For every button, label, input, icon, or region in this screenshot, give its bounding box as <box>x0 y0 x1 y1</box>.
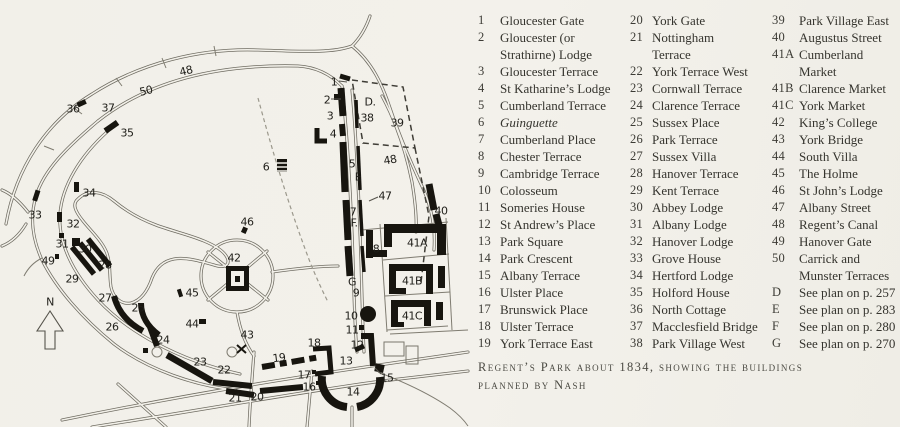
map-label-14: 14 <box>347 386 360 399</box>
map-label-48: 48 <box>382 152 398 167</box>
legend-item-number: 3 <box>478 63 500 80</box>
legend-item-label: Gloucester Terrace <box>500 63 628 80</box>
legend-item-number: 25 <box>630 114 652 131</box>
map-label-27: 27 <box>99 292 112 305</box>
legend-item: 29Kent Terrace <box>630 182 770 199</box>
map-label-19: 19 <box>272 351 287 366</box>
legend-item: 21NottinghamTerrace <box>630 29 770 63</box>
legend-item: 49Hanover Gate <box>772 233 900 250</box>
map-label-16: 16 <box>303 381 316 394</box>
map-label-26: 26 <box>106 321 119 334</box>
legend-item: 23Cornwall Terrace <box>630 80 770 97</box>
legend-item: 26Park Terrace <box>630 131 770 148</box>
legend-column: 1Gloucester Gate2Gloucester (orStrathirn… <box>478 12 628 352</box>
legend-item-number: 2 <box>478 29 500 46</box>
legend-item-number: 17 <box>478 301 500 318</box>
legend-item-label: York Terrace West <box>652 63 770 80</box>
legend-item-label: Cumberland Place <box>500 131 628 148</box>
legend-item: 41CYork Market <box>772 97 900 114</box>
york-bridge-mark <box>237 345 246 353</box>
legend-item-label: Brunswick Place <box>500 301 628 318</box>
legend-item-label: Augustus Street <box>799 29 900 46</box>
legend-item: 37Macclesfield Bridge <box>630 318 770 335</box>
map-label-22: 22 <box>218 364 231 377</box>
legend-item: 47Albany Street <box>772 199 900 216</box>
map-label-11: 11 <box>346 324 359 337</box>
legend-item-label-line2: Munster Terraces <box>799 267 900 284</box>
map-label-40: 40 <box>435 205 448 218</box>
legend-item-label-line2: Strathirne) Lodge <box>500 46 628 63</box>
legend-item: 17Brunswick Place <box>478 301 628 318</box>
legend-item: 8Chester Terrace <box>478 148 628 165</box>
legend-item-number: 28 <box>630 165 652 182</box>
map-label-6: 6 <box>263 161 270 174</box>
legend-item-number: 5 <box>478 97 500 114</box>
legend-item: 50Carrick andMunster Terraces <box>772 250 900 284</box>
legend-item-number: 43 <box>772 131 799 148</box>
legend-item-number: 4 <box>478 80 500 97</box>
legend-item: 40Augustus Street <box>772 29 900 46</box>
map-label-37: 37 <box>102 102 115 115</box>
map-label-36: 36 <box>67 103 80 116</box>
legend-item-number: 49 <box>772 233 799 250</box>
legend-item-label: Regent’s Canal <box>799 216 900 233</box>
legend-item-label: Cambridge Terrace <box>500 165 628 182</box>
legend-item: 36North Cottage <box>630 301 770 318</box>
legend-item: 45The Holme <box>772 165 900 182</box>
legend-item-label: The Holme <box>799 165 900 182</box>
legend-item-number: 37 <box>630 318 652 335</box>
legend-item: 43York Bridge <box>772 131 900 148</box>
map-label-2: 2 <box>324 94 331 107</box>
legend-item: 28Hanover Terrace <box>630 165 770 182</box>
legend-item: FSee plan on p. 280 <box>772 318 900 335</box>
map-label-N: N <box>46 296 54 309</box>
legend-item: 38Park Village West <box>630 335 770 352</box>
legend-item: 42King’s College <box>772 114 900 131</box>
legend-item-label: South Villa <box>799 148 900 165</box>
legend-item-label: Cornwall Terrace <box>652 80 770 97</box>
legend-item-number: 34 <box>630 267 652 284</box>
legend-item-number: 39 <box>772 12 799 29</box>
legend-item-number: 30 <box>630 199 652 216</box>
legend-item-label: See plan on p. 283 <box>799 301 900 318</box>
legend-item: DSee plan on p. 257 <box>772 284 900 301</box>
legend-item-number: 14 <box>478 250 500 267</box>
legend-item-label-line2: Market <box>799 63 900 80</box>
legend-item-number: 23 <box>630 80 652 97</box>
legend-item-number: E <box>772 301 799 318</box>
legend-item: 27Sussex Villa <box>630 148 770 165</box>
legend-item-number: 27 <box>630 148 652 165</box>
legend-item-label-line2: Terrace <box>652 46 770 63</box>
legend-item-label: Park Crescent <box>500 250 628 267</box>
legend-item: 20York Gate <box>630 12 770 29</box>
legend-item-number: 42 <box>772 114 799 131</box>
legend-item: 35Holford House <box>630 284 770 301</box>
legend-item-label: See plan on p. 257 <box>799 284 900 301</box>
legend-item-number: 44 <box>772 148 799 165</box>
legend-item-number: 24 <box>630 97 652 114</box>
legend-column: 39Park Village East40Augustus Street41AC… <box>772 12 900 352</box>
legend-item-label: Guinguette <box>500 114 628 131</box>
colosseum-dome <box>360 306 376 322</box>
map-label-3: 3 <box>327 110 334 123</box>
legend-item-label: NottinghamTerrace <box>652 29 770 63</box>
legend-item-label: Kent Terrace <box>652 182 770 199</box>
legend-item-label: Carrick andMunster Terraces <box>799 250 900 284</box>
map-label-29: 29 <box>66 273 79 286</box>
legend-item-label: Macclesfield Bridge <box>652 318 770 335</box>
legend-item: 14Park Crescent <box>478 250 628 267</box>
clarence-gate-circle <box>152 347 162 357</box>
map-label-44: 44 <box>186 318 199 331</box>
legend-item-number: 1 <box>478 12 500 29</box>
legend-item-label: Park Village West <box>652 335 770 352</box>
legend-item-number: 20 <box>630 12 652 29</box>
legend-item: 18Ulster Terrace <box>478 318 628 335</box>
map-label-41B: 41B <box>402 275 422 288</box>
legend-item-label: Grove House <box>652 250 770 267</box>
legend-item: 5Cumberland Terrace <box>478 97 628 114</box>
map-label-23: 23 <box>194 356 207 369</box>
legend-item-label: Someries House <box>500 199 628 216</box>
legend-item: 22York Terrace West <box>630 63 770 80</box>
legend-item-number: 7 <box>478 131 500 148</box>
legend-item: 16Ulster Place <box>478 284 628 301</box>
legend-item-number: 47 <box>772 199 799 216</box>
legend-item-label: North Cottage <box>652 301 770 318</box>
legend-item-number: 29 <box>630 182 652 199</box>
legend-item-label: St Katharine’s Lodge <box>500 80 628 97</box>
map-label-20: 20 <box>251 391 264 404</box>
legend-item-label: York Terrace East <box>500 335 628 352</box>
map-label-31: 31 <box>56 238 69 251</box>
map-label-15: 15 <box>381 372 394 385</box>
legend-item: 25Sussex Place <box>630 114 770 131</box>
map-label-12: 12 <box>351 339 364 352</box>
legend-item: 32Hanover Lodge <box>630 233 770 250</box>
legend-item-label: Abbey Lodge <box>652 199 770 216</box>
map-label-34: 34 <box>83 187 96 200</box>
map-label-10: 10 <box>345 310 358 323</box>
legend-item: 15Albany Terrace <box>478 267 628 284</box>
legend-item-number: 33 <box>630 250 652 267</box>
legend-item: 13Park Square <box>478 233 628 250</box>
legend-item-label: Cumberland Terrace <box>500 97 628 114</box>
map-label-32: 32 <box>67 218 80 231</box>
legend-item-number: 35 <box>630 284 652 301</box>
legend-item-label: Ulster Terrace <box>500 318 628 335</box>
map-label-18: 18 <box>308 337 321 350</box>
map-label-D: D. <box>365 96 376 109</box>
legend-item-number: 26 <box>630 131 652 148</box>
legend-item-label: Holford House <box>652 284 770 301</box>
map-label-G: G <box>348 276 356 289</box>
legend-item-number: 16 <box>478 284 500 301</box>
legend-item-label: Hanover Lodge <box>652 233 770 250</box>
legend-item: 19York Terrace East <box>478 335 628 352</box>
map-label-50: 50 <box>138 83 154 99</box>
legend-item: 31Albany Lodge <box>630 216 770 233</box>
map-label-45: 45 <box>186 287 199 300</box>
caption-line-2: planned by Nash <box>478 376 888 394</box>
map-label-30: 30 <box>79 243 92 256</box>
map-label-33: 33 <box>29 209 42 222</box>
legend-item-number: 38 <box>630 335 652 352</box>
map-label-7: 7 <box>350 206 357 219</box>
map-label-13: 13 <box>340 355 353 368</box>
legend-item-number: 31 <box>630 216 652 233</box>
legend-item-label: Park Square <box>500 233 628 250</box>
legend-item-label: Albany Lodge <box>652 216 770 233</box>
regents-park-map: 4850363735343332313049282927252624454446… <box>0 0 470 427</box>
legend-item-label: York Bridge <box>799 131 900 148</box>
legend-item: 7Cumberland Place <box>478 131 628 148</box>
book-page: { "caption": { "line1": "Regent’s Park a… <box>0 0 900 427</box>
legend-item-label: Albany Street <box>799 199 900 216</box>
legend-item-number: 15 <box>478 267 500 284</box>
legend-item-label: Sussex Place <box>652 114 770 131</box>
legend-item-number: 22 <box>630 63 652 80</box>
legend-item-number: 19 <box>478 335 500 352</box>
legend-item-number: 6 <box>478 114 500 131</box>
legend-item-label: Gloucester (orStrathirne) Lodge <box>500 29 628 63</box>
legend-item: 48Regent’s Canal <box>772 216 900 233</box>
legend-item: 10Colosseum <box>478 182 628 199</box>
legend-item-number: 41B <box>772 80 799 97</box>
legend-item-label: Hanover Terrace <box>652 165 770 182</box>
legend-item-number: 46 <box>772 182 799 199</box>
legend-item-label: Sussex Villa <box>652 148 770 165</box>
legend-item-number: 41C <box>772 97 799 114</box>
legend-item-number: 36 <box>630 301 652 318</box>
legend-item-label: St John’s Lodge <box>799 182 900 199</box>
legend-item-number: 9 <box>478 165 500 182</box>
legend-item-label: Gloucester Gate <box>500 12 628 29</box>
legend-item: 6Guinguette <box>478 114 628 131</box>
north-arrow-icon <box>37 311 63 349</box>
legend-item-label: York Market <box>799 97 900 114</box>
legend-item-number: 12 <box>478 216 500 233</box>
legend-item-number: D <box>772 284 799 301</box>
legend-item-number: 48 <box>772 216 799 233</box>
legend-item: 34Hertford Lodge <box>630 267 770 284</box>
legend-item: 24Clarence Terrace <box>630 97 770 114</box>
map-label-21: 21 <box>229 392 242 405</box>
map-label-42: 42 <box>228 252 241 265</box>
figure-caption: Regent’s Park about 1834, showing the bu… <box>478 358 888 394</box>
map-label-47: 47 <box>379 190 392 203</box>
legend-item-label: St Andrew’s Place <box>500 216 628 233</box>
map-label-24: 24 <box>157 334 170 347</box>
map-label-43: 43 <box>241 329 254 342</box>
legend-item-number: 40 <box>772 29 799 46</box>
legend-item: 4St Katharine’s Lodge <box>478 80 628 97</box>
map-label-49: 49 <box>42 255 55 268</box>
map-label-8: 8 <box>373 243 380 256</box>
legend-column: 20York Gate21NottinghamTerrace22York Ter… <box>630 12 770 352</box>
legend-item-number: 13 <box>478 233 500 250</box>
legend-item-number: 10 <box>478 182 500 199</box>
legend-item-label: Hertford Lodge <box>652 267 770 284</box>
legend-item-number: 50 <box>772 250 799 267</box>
legend-item: 2Gloucester (orStrathirne) Lodge <box>478 29 628 63</box>
legend-item: 41BClarence Market <box>772 80 900 97</box>
legend-item-label: Park Terrace <box>652 131 770 148</box>
legend-item-label: King’s College <box>799 114 900 131</box>
legend-item-number: 8 <box>478 148 500 165</box>
legend-item: 46St John’s Lodge <box>772 182 900 199</box>
legend-item-label: Hanover Gate <box>799 233 900 250</box>
york-gate-circle <box>227 347 237 357</box>
legend-item: 12St Andrew’s Place <box>478 216 628 233</box>
legend-item-number: 11 <box>478 199 500 216</box>
legend-item-number: F <box>772 318 799 335</box>
legend-item: 11Someries House <box>478 199 628 216</box>
legend-item: 41ACumberlandMarket <box>772 46 900 80</box>
legend-item-label: Colosseum <box>500 182 628 199</box>
map-label-46: 46 <box>241 216 254 229</box>
legend-item: 44South Villa <box>772 148 900 165</box>
map-label-28: 28 <box>99 259 112 272</box>
legend-item-number: 18 <box>478 318 500 335</box>
legend-item-number: 21 <box>630 29 652 46</box>
map-label-41C: 41C <box>402 310 423 323</box>
legend-item-number: 41A <box>772 46 799 63</box>
legend-item: 3Gloucester Terrace <box>478 63 628 80</box>
legend-item-label: CumberlandMarket <box>799 46 900 80</box>
map-label-5: 5 <box>349 158 356 171</box>
legend-item-label: Clarence Market <box>799 80 900 97</box>
legend-item-number: 32 <box>630 233 652 250</box>
legend-item-label: See plan on p. 270 <box>799 335 900 352</box>
map-label-25: 25 <box>132 302 145 315</box>
map-label-4: 4 <box>330 128 337 141</box>
legend-item: 30Abbey Lodge <box>630 199 770 216</box>
legend-item: 39Park Village East <box>772 12 900 29</box>
legend-item-label: Clarence Terrace <box>652 97 770 114</box>
legend-item-number: 45 <box>772 165 799 182</box>
legend-item-label: Park Village East <box>799 12 900 29</box>
legend-item-label: Albany Terrace <box>500 267 628 284</box>
map-label-38: 38 <box>361 112 374 125</box>
legend-item: 1Gloucester Gate <box>478 12 628 29</box>
map-label-1: 1 <box>331 76 338 89</box>
map-label-39: 39 <box>391 117 404 130</box>
map-label-41A: 41A <box>407 237 428 250</box>
legend-item-label: York Gate <box>652 12 770 29</box>
legend-item-number: G <box>772 335 799 352</box>
caption-line-1: Regent’s Park about 1834, showing the bu… <box>478 358 888 376</box>
legend-item-label: Chester Terrace <box>500 148 628 165</box>
map-label-35: 35 <box>121 127 134 140</box>
legend-item: 9Cambridge Terrace <box>478 165 628 182</box>
legend-item: GSee plan on p. 270 <box>772 335 900 352</box>
legend-item-label: Ulster Place <box>500 284 628 301</box>
legend-item-label: See plan on p. 280 <box>799 318 900 335</box>
legend-item: ESee plan on p. 283 <box>772 301 900 318</box>
map-label-E: E <box>355 171 362 184</box>
legend-item: 33Grove House <box>630 250 770 267</box>
